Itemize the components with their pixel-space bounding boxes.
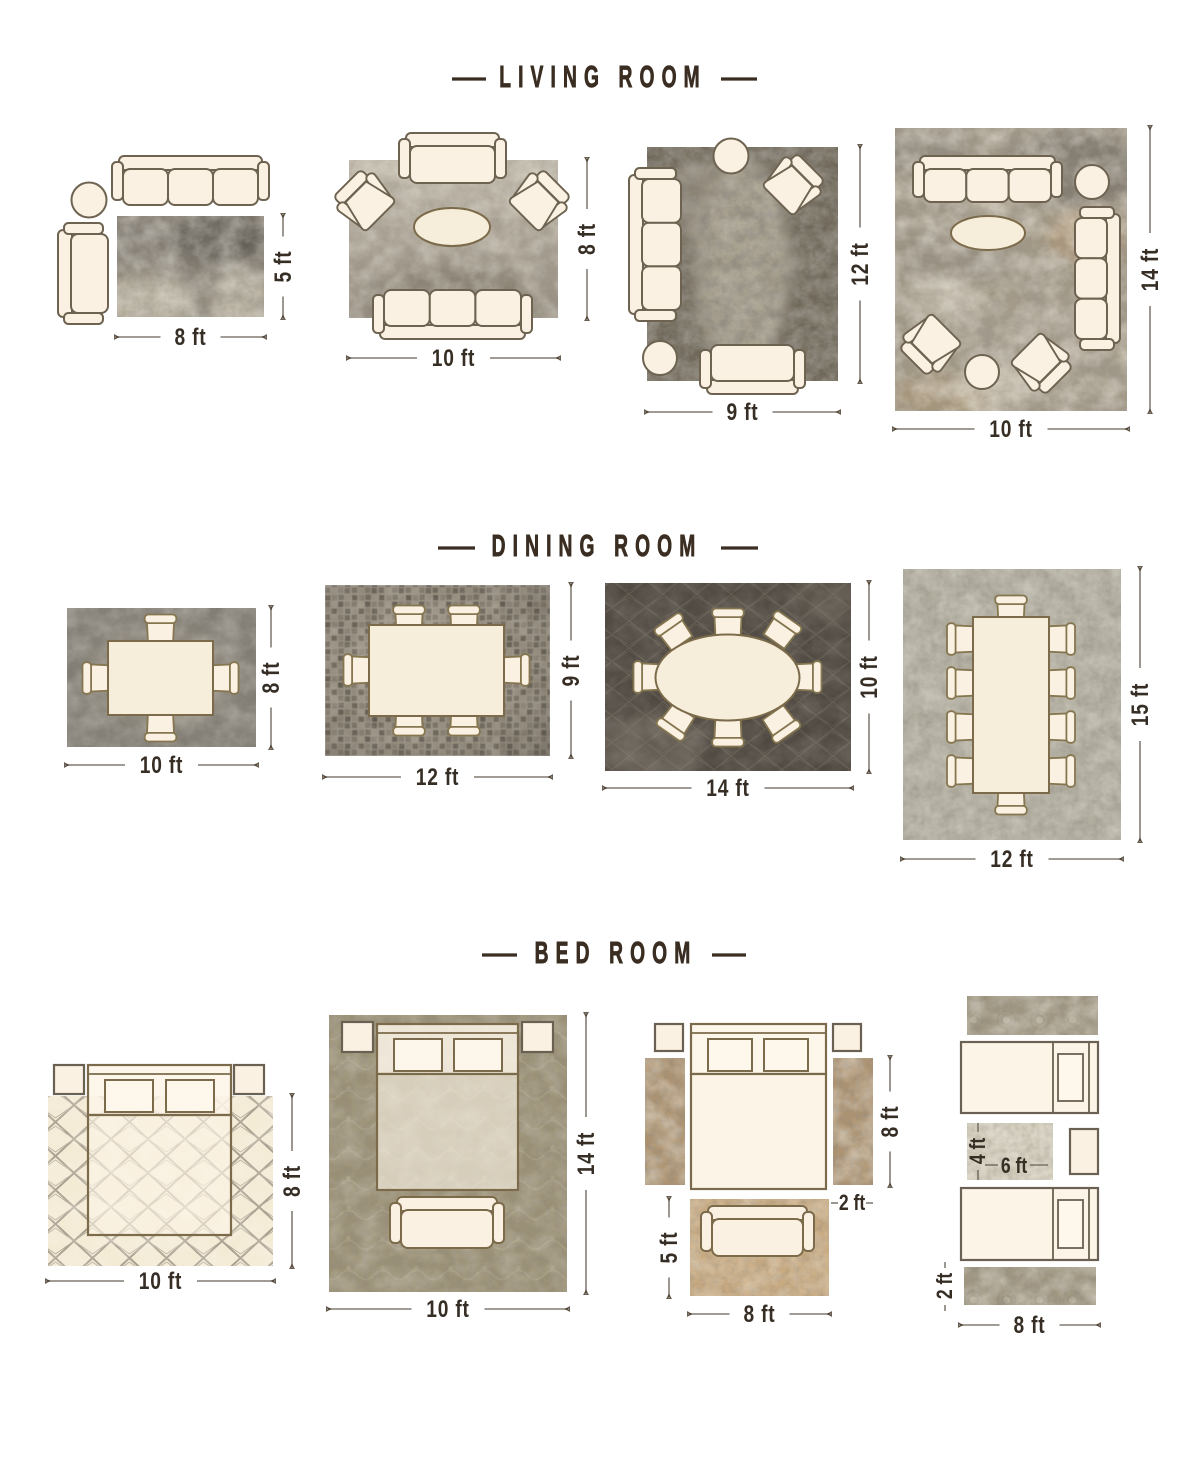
svg-text:8 ft: 8 ft <box>876 1106 904 1138</box>
svg-text:10 ft: 10 ft <box>855 655 883 698</box>
svg-text:8 ft: 8 ft <box>573 223 601 255</box>
svg-text:8 ft: 8 ft <box>744 1300 776 1328</box>
svg-text:12 ft: 12 ft <box>846 242 874 285</box>
svg-text:8 ft: 8 ft <box>1014 1311 1046 1339</box>
svg-text:LIVING ROOM: LIVING ROOM <box>499 61 707 95</box>
svg-text:10 ft: 10 ft <box>139 1267 182 1295</box>
svg-text:14 ft: 14 ft <box>572 1132 600 1175</box>
svg-text:14 ft: 14 ft <box>706 774 749 802</box>
svg-text:9 ft: 9 ft <box>727 398 759 426</box>
svg-text:10 ft: 10 ft <box>426 1295 469 1323</box>
svg-text:12 ft: 12 ft <box>416 763 459 791</box>
svg-text:10 ft: 10 ft <box>989 415 1032 443</box>
svg-text:5 ft: 5 ft <box>269 251 297 283</box>
svg-text:DINING ROOM: DINING ROOM <box>492 530 703 564</box>
svg-text:8 ft: 8 ft <box>257 662 285 694</box>
svg-text:14 ft: 14 ft <box>1136 248 1164 291</box>
svg-text:10 ft: 10 ft <box>432 344 475 372</box>
svg-text:12 ft: 12 ft <box>990 845 1033 873</box>
svg-text:8 ft: 8 ft <box>175 323 207 351</box>
svg-text:4 ft: 4 ft <box>966 1137 990 1164</box>
svg-text:5 ft: 5 ft <box>655 1232 683 1264</box>
svg-text:BED ROOM: BED ROOM <box>535 937 698 971</box>
svg-text:2 ft: 2 ft <box>933 1272 957 1299</box>
svg-text:15 ft: 15 ft <box>1126 683 1154 726</box>
svg-text:10 ft: 10 ft <box>140 751 183 779</box>
svg-text:9 ft: 9 ft <box>557 655 585 687</box>
svg-text:6 ft: 6 ft <box>1001 1154 1028 1178</box>
svg-text:2 ft: 2 ft <box>839 1191 866 1215</box>
svg-text:8 ft: 8 ft <box>278 1165 306 1197</box>
